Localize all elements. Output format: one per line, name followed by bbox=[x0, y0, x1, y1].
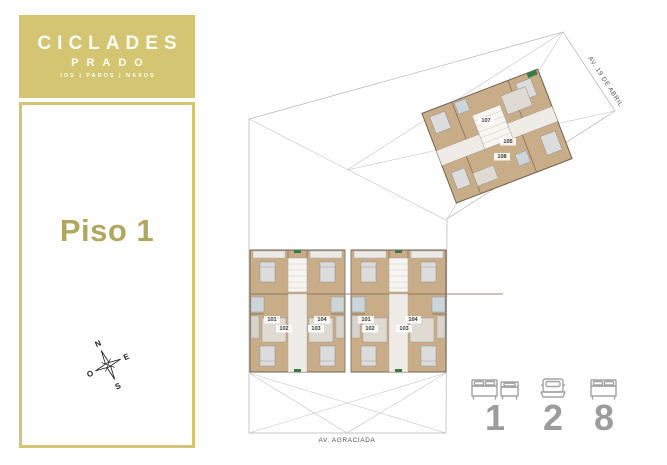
unit-label-right-104[interactable]: 104 bbox=[405, 316, 421, 324]
compass-east: E bbox=[122, 352, 131, 363]
compass-south: S bbox=[114, 381, 123, 392]
svg-text:104[interactable]: 104 bbox=[408, 317, 418, 323]
brand-logo: CICLADES PRADO IOS | PAROS | NAXOS bbox=[19, 15, 195, 98]
logo-title: CICLADES bbox=[31, 34, 182, 55]
unit-label-right-102[interactable]: 102 bbox=[362, 325, 378, 333]
unit-label-108[interactable]: 108 bbox=[494, 153, 510, 161]
legend-count: 1 bbox=[485, 397, 505, 438]
lower-building: 101 104 102 103 101 104 102 103 bbox=[250, 250, 503, 372]
compass-north: N bbox=[94, 338, 103, 349]
svg-text:101[interactable]: 101 bbox=[267, 317, 276, 323]
unit-label-right-103[interactable]: 103 bbox=[396, 325, 412, 333]
street-label-19-de-abril: AV. 19 DE ABRIL bbox=[586, 55, 624, 108]
svg-text:103[interactable]: 103 bbox=[399, 326, 408, 332]
svg-text:102[interactable]: 102 bbox=[365, 326, 374, 332]
unit-label-left-103[interactable]: 103 bbox=[308, 325, 324, 333]
legend-count: 2 bbox=[543, 397, 563, 438]
compass-icon: N E S O bbox=[70, 327, 146, 403]
svg-text:104[interactable]: 104 bbox=[317, 317, 327, 323]
unit-label-107[interactable]: 107 bbox=[478, 117, 494, 125]
legend-item-two-beds: 1 bbox=[472, 380, 518, 438]
unit-label-left-101[interactable]: 101 bbox=[264, 316, 280, 324]
svg-text:102[interactable]: 102 bbox=[279, 326, 288, 332]
right-apartment-block bbox=[351, 250, 503, 372]
legend: 1 2 8 bbox=[472, 379, 616, 438]
floor-label: Piso 1 bbox=[22, 213, 192, 249]
legend-item-bedroom: 8 bbox=[591, 380, 616, 438]
unit-label-left-104[interactable]: 104 bbox=[314, 316, 330, 324]
rotated-building: 107 105 108 bbox=[422, 69, 572, 203]
unit-label-left-102[interactable]: 102 bbox=[276, 325, 292, 333]
unit-label-right-101[interactable]: 101 bbox=[358, 316, 374, 324]
logo-tagline: IOS | PAROS | NAXOS bbox=[58, 73, 155, 79]
sidebar: CICLADES PRADO IOS | PAROS | NAXOS Piso … bbox=[19, 15, 195, 448]
svg-text:101[interactable]: 101 bbox=[361, 317, 370, 323]
sidebar-panel: Piso 1 N E S O bbox=[19, 102, 195, 448]
unit-label-105[interactable]: 105 bbox=[500, 138, 516, 146]
logo-subtitle: PRADO bbox=[63, 57, 151, 69]
svg-text:107[interactable]: 107 bbox=[481, 118, 490, 124]
compass-west: O bbox=[85, 369, 94, 380]
street-label-agraciada: AV. AGRACIADA bbox=[319, 437, 376, 444]
car-icon bbox=[541, 379, 565, 397]
svg-text:105[interactable]: 105 bbox=[503, 139, 512, 145]
legend-item-garage: 2 bbox=[541, 379, 565, 438]
legend-count: 8 bbox=[594, 397, 614, 438]
svg-text:108[interactable]: 108 bbox=[497, 154, 506, 160]
svg-text:103[interactable]: 103 bbox=[311, 326, 320, 332]
site-boundary bbox=[249, 32, 615, 433]
